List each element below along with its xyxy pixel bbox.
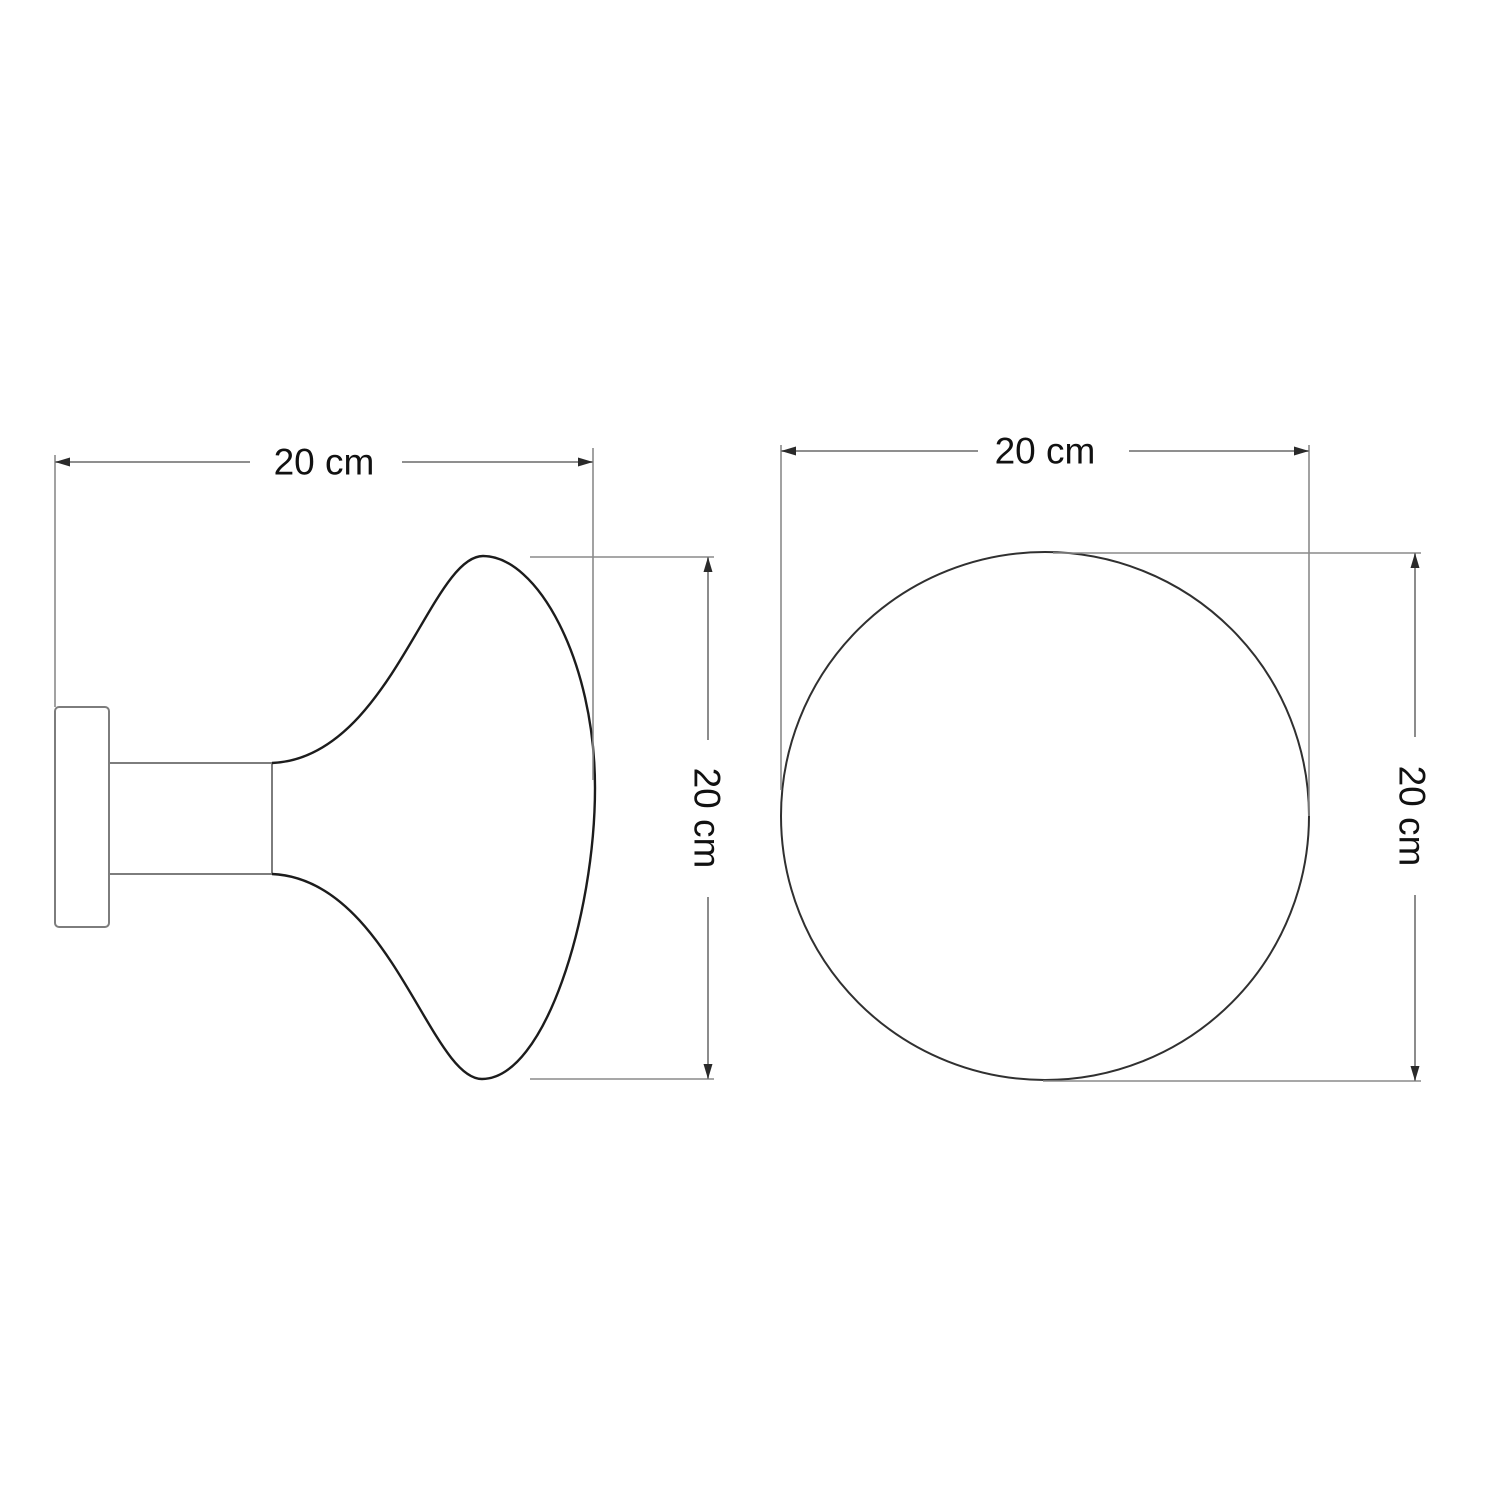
dimension-label: 20 cm [995,431,1096,472]
side-view-width-dimension: 20 cm [55,442,593,781]
dimension-label: 20 cm [274,442,375,483]
stem-outline [109,763,272,874]
knob-head-outline [272,556,595,1079]
knob-face-circle [781,552,1309,1080]
dimension-arrow-left-icon [55,458,70,467]
dimension-arrow-up-icon [704,557,713,572]
technical-drawing-page: 20 cm 20 cm [0,0,1500,1500]
dimension-label: 20 cm [687,768,728,869]
side-view-height-dimension: 20 cm [530,557,728,1079]
wall-plate-outline [55,707,109,927]
dimension-arrow-left-icon [781,447,796,456]
side-view: 20 cm 20 cm [55,442,728,1080]
dimension-arrow-down-icon [704,1064,713,1079]
dimension-arrow-right-icon [578,458,593,467]
front-view-width-dimension: 20 cm [781,431,1309,817]
front-view: 20 cm 20 cm [781,431,1433,1082]
front-view-height-dimension: 20 cm [1043,553,1433,1081]
technical-drawing-canvas: 20 cm 20 cm [0,0,1500,1500]
dimension-arrow-up-icon [1411,553,1420,568]
dimension-label: 20 cm [1392,766,1433,867]
dimension-arrow-right-icon [1294,447,1309,456]
dimension-arrow-down-icon [1411,1066,1420,1081]
